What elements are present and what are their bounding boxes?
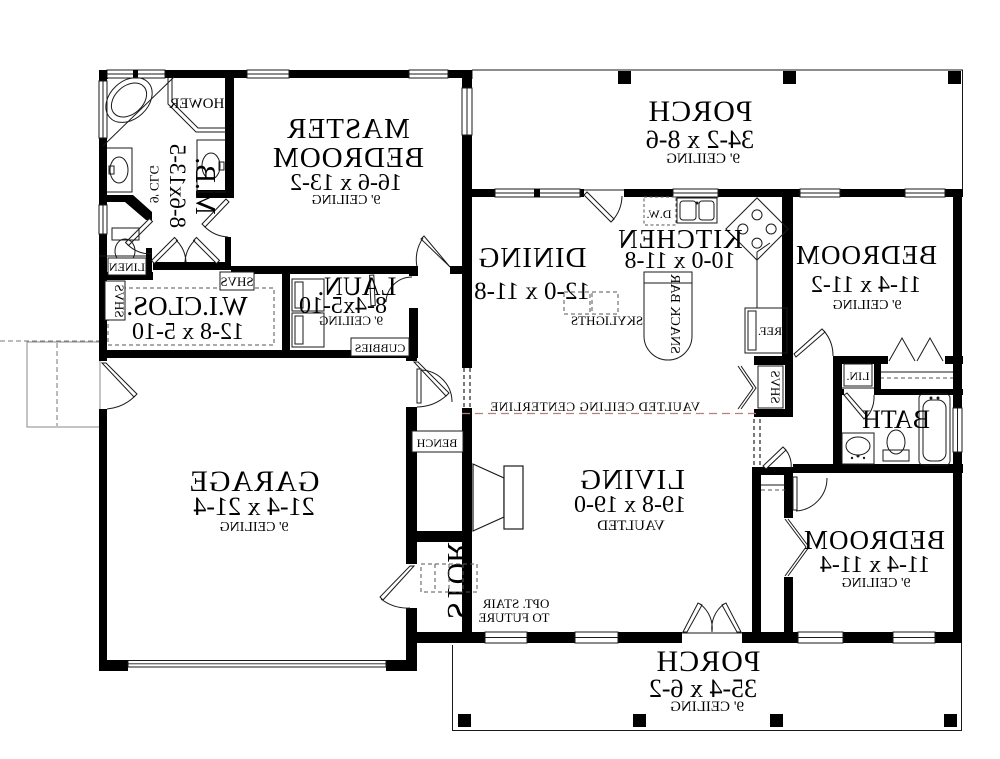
svg-text:SKYLIGHTS: SKYLIGHTS <box>571 313 643 328</box>
svg-text:9' CEILING: 9' CEILING <box>841 576 910 591</box>
svg-text:MASTER: MASTER <box>286 113 410 145</box>
svg-text:9' CLG: 9' CLG <box>147 165 162 203</box>
svg-text:BEDROOM: BEDROOM <box>795 240 937 270</box>
svg-text:11-4 x 11-2: 11-4 x 11-2 <box>811 272 921 298</box>
svg-text:SHVS: SHVS <box>112 284 127 317</box>
svg-text:STOR.: STOR. <box>441 535 474 619</box>
svg-text:VAULTED CEILING CENTERLINE: VAULTED CEILING CENTERLINE <box>490 399 700 414</box>
svg-text:34-2 x 8-6: 34-2 x 8-6 <box>646 125 754 154</box>
svg-text:21-4 x 21-4: 21-4 x 21-4 <box>193 492 314 521</box>
svg-text:9' CEILING: 9' CEILING <box>832 298 901 313</box>
svg-text:W.I.CLOS.: W.I.CLOS. <box>126 291 247 321</box>
svg-text:CUBBIES: CUBBIES <box>355 341 406 355</box>
svg-text:9' CEILING: 9' CEILING <box>670 699 744 715</box>
svg-text:SNACK BAR: SNACK BAR <box>667 273 682 353</box>
svg-text:BENCH: BENCH <box>416 436 457 450</box>
svg-text:9' CEILING: 9' CEILING <box>319 313 383 328</box>
svg-text:LINEN: LINEN <box>109 260 145 274</box>
svg-text:DINING: DINING <box>477 242 586 274</box>
svg-text:VAULTED: VAULTED <box>597 518 665 534</box>
svg-text:SHVS: SHVS <box>768 370 783 403</box>
svg-text:9' CEILING: 9' CEILING <box>666 151 740 167</box>
svg-text:BATH: BATH <box>862 405 930 434</box>
svg-text:M.B.: M.B. <box>189 157 220 215</box>
svg-text:11-4 x 11-4: 11-4 x 11-4 <box>820 552 930 578</box>
svg-text:10-0 x 11-8: 10-0 x 11-8 <box>624 248 735 274</box>
svg-text:OPT. STAIR: OPT. STAIR <box>482 596 549 611</box>
svg-text:SHVS: SHVS <box>220 274 253 289</box>
svg-text:D.W.: D.W. <box>647 207 672 221</box>
svg-text:REF.: REF. <box>758 324 782 338</box>
svg-text:9' CEILING: 9' CEILING <box>219 520 288 535</box>
svg-text:19-8 x 19-0: 19-8 x 19-0 <box>574 492 686 518</box>
svg-text:12-8 x 5-10: 12-8 x 5-10 <box>132 319 244 345</box>
svg-text:SHOWER: SHOWER <box>169 96 232 112</box>
svg-text:BEDROOM: BEDROOM <box>803 525 945 555</box>
svg-text:9' CEILING: 9' CEILING <box>311 193 380 208</box>
svg-text:TO FUTURE: TO FUTURE <box>478 610 549 625</box>
svg-text:PORCH: PORCH <box>647 95 752 128</box>
svg-text:8-6x13-5: 8-6x13-5 <box>165 144 190 228</box>
svg-text:LIN.: LIN. <box>847 369 870 383</box>
